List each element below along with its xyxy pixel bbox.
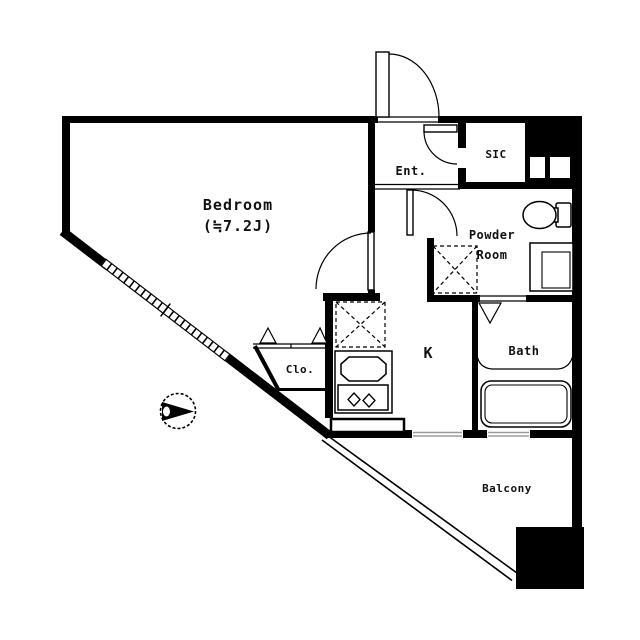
toilet-bowl [523, 202, 556, 229]
top-wall-left [62, 116, 378, 123]
kitchen-left-wall [325, 300, 333, 418]
left-wall [62, 116, 70, 237]
powder-bottom-wall-right [526, 295, 572, 302]
bedroom-hall-wall [368, 123, 375, 232]
powder-room-label-line1: Powder [469, 228, 515, 242]
kitchen-lower-counter [331, 419, 404, 432]
closet-bottom-edge [277, 388, 328, 391]
kitchen-label: K [423, 344, 432, 362]
north-arrow-compass [161, 394, 196, 429]
powder-room-label-line2: Room [477, 248, 508, 262]
bath-label: Bath [509, 344, 540, 358]
balcony-label: Balcony [482, 482, 532, 495]
vanity-counter [530, 243, 573, 291]
kitchen-sink [341, 357, 386, 381]
top-wall-right [438, 116, 582, 123]
sic-label: SIC [485, 148, 506, 161]
sic-wall-lower [458, 168, 466, 182]
bathtub [481, 381, 571, 427]
bedroom-size-label: (≒7.2J) [203, 217, 273, 235]
entrance-door-leaf [376, 52, 389, 117]
bottom-wall-2 [463, 430, 487, 438]
powder-left-wall [427, 238, 434, 297]
window-opening-2 [487, 429, 530, 439]
floor-plan-canvas: Bedroom (≒7.2J) Ent. SIC Powder Room Bat… [0, 0, 640, 640]
balcony-corner-pillar [516, 527, 584, 589]
bedroom-label: Bedroom [203, 196, 273, 214]
sic-wall-upper [458, 123, 466, 148]
compass-arrow-notch [163, 407, 170, 417]
powder-bottom-wall-left [427, 295, 480, 302]
bedroom-bottom-wall [323, 293, 380, 301]
hall-door-leaf [407, 190, 413, 235]
entrance-label: Ent. [396, 164, 427, 178]
bottom-wall-3 [530, 430, 582, 438]
floor-plan: Bedroom (≒7.2J) Ent. SIC Powder Room Bat… [0, 0, 640, 640]
closet-label: Clo. [286, 363, 315, 376]
sic-door-leaf [424, 125, 457, 132]
window-opening-1 [412, 429, 463, 439]
sic-bottom-wall [458, 182, 582, 189]
stove [338, 385, 388, 410]
pipe-shaft-2 [550, 157, 570, 178]
bedroom-door-leaf [368, 232, 374, 290]
pipe-shaft-1 [530, 157, 545, 178]
kitchen-bath-wall [472, 302, 478, 430]
right-wall [572, 116, 582, 529]
